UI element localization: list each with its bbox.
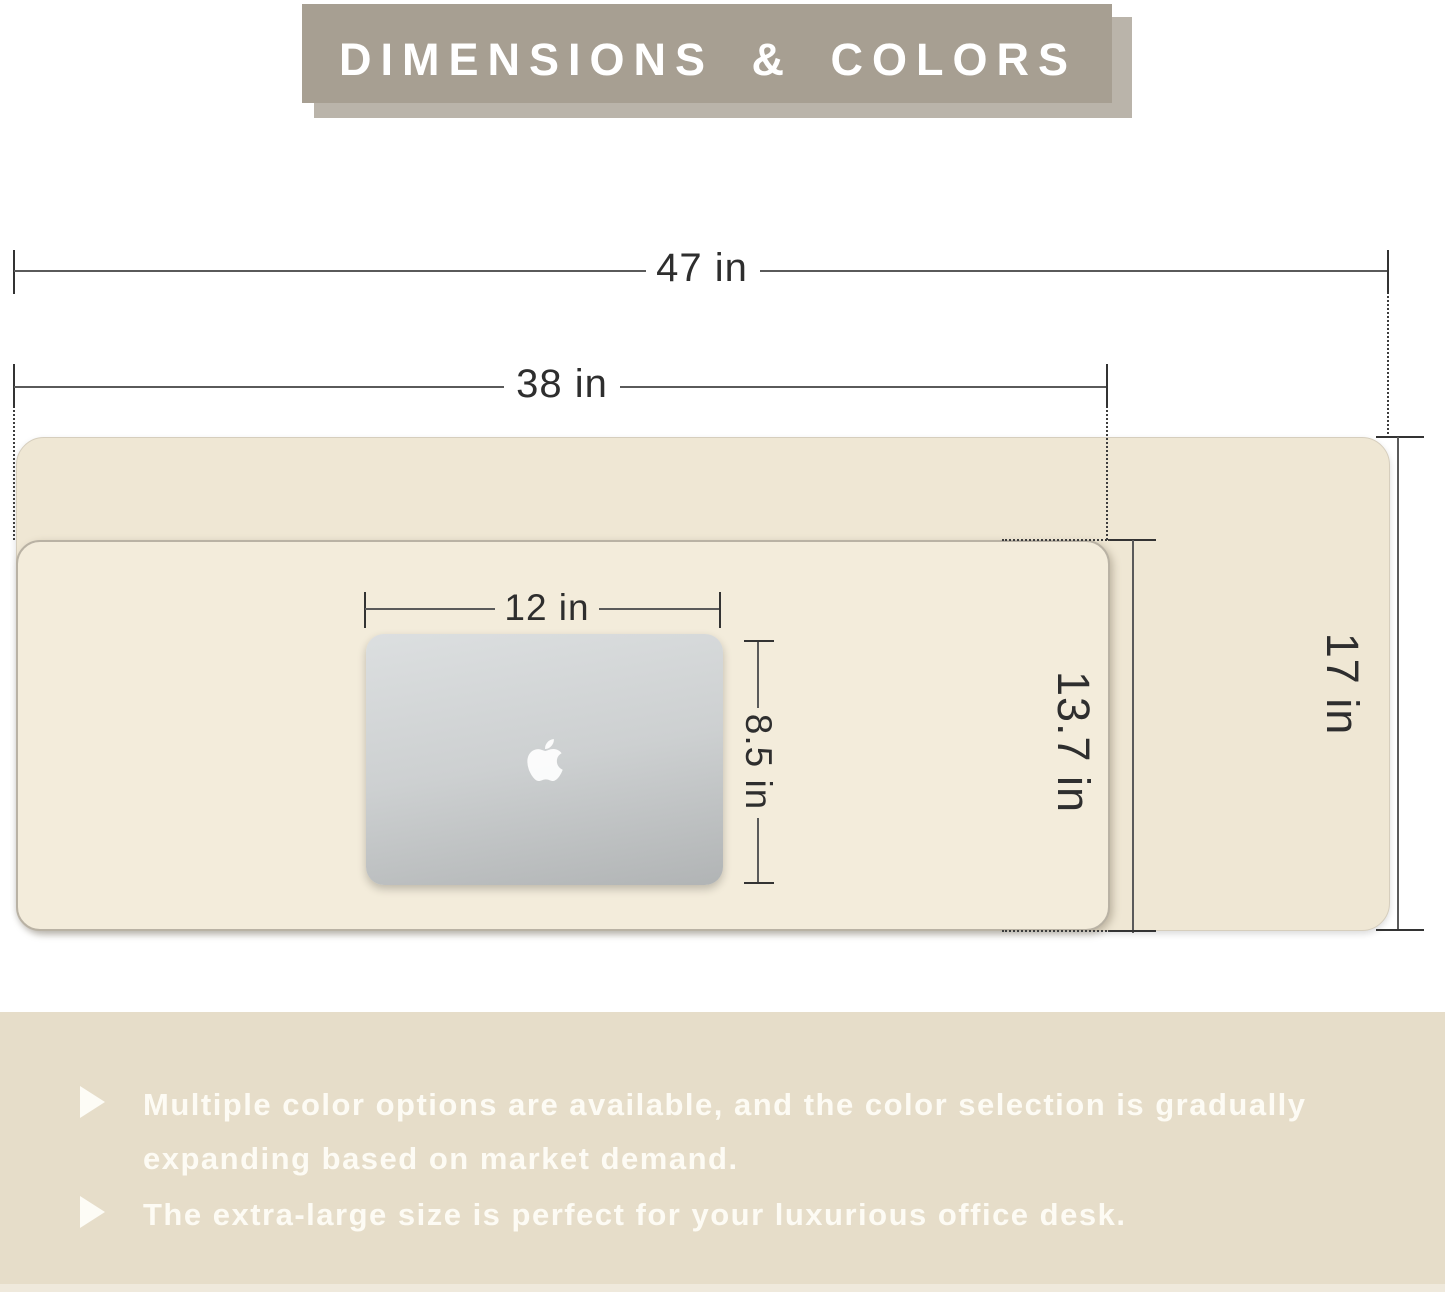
dim-38-tick-right [1106, 364, 1108, 408]
dim-12-tick-left [364, 592, 366, 628]
features-bottom-strip [0, 1284, 1445, 1292]
dim-38-line-left [14, 386, 504, 388]
dim-17-tick-top [1376, 436, 1424, 438]
dim-85-tick-bottom [744, 882, 774, 884]
dim-38-line-right [620, 386, 1108, 388]
feature-text-size: The extra-large size is perfect for your… [143, 1188, 1413, 1242]
dim-12-tick-right [719, 592, 721, 628]
dim-38-extension-left [13, 410, 15, 540]
dim-38-extension-right [1106, 410, 1108, 540]
feature-item: Multiple color options are available, an… [80, 1078, 1413, 1186]
dim-85-tick-top [744, 640, 774, 642]
page-title: DIMENSIONS & COLORS [302, 4, 1114, 116]
dim-17-label: 17 in [1316, 633, 1368, 736]
bullet-triangle-icon [80, 1196, 105, 1228]
dim-47-label: 47 in [640, 246, 764, 290]
dim-47-line-left [14, 270, 646, 272]
dim-85-label: 8.5 in [737, 714, 779, 811]
dim-47-tick-left [13, 250, 15, 294]
bullet-triangle-icon [80, 1086, 105, 1118]
features-section: Multiple color options are available, an… [0, 1012, 1445, 1284]
dim-137-label: 13.7 in [1047, 671, 1099, 813]
dim-38-label: 38 in [500, 362, 624, 406]
dim-17-tick-bottom [1376, 929, 1424, 931]
dim-137-tick-bottom [1110, 930, 1156, 932]
apple-logo-icon [525, 736, 565, 784]
dim-85-line-top [757, 642, 759, 708]
dim-12-label: 12 in [495, 588, 599, 628]
dim-17-line [1397, 437, 1399, 931]
dim-12-line-left [365, 608, 495, 610]
dim-47-line-right [760, 270, 1389, 272]
product-infographic: DIMENSIONS & COLORS 47 in 38 in 13.7 in … [0, 0, 1445, 1292]
dim-12-line-right [599, 608, 720, 610]
dim-47-extension-line [1387, 296, 1389, 438]
feature-text-colors: Multiple color options are available, an… [143, 1078, 1413, 1186]
laptop [366, 634, 723, 885]
dim-47-tick-right [1387, 250, 1389, 294]
feature-item: The extra-large size is perfect for your… [80, 1188, 1413, 1242]
dim-137-extension-bottom [1002, 930, 1110, 932]
dim-137-line [1132, 540, 1134, 933]
dim-85-line-bottom [757, 818, 759, 884]
dim-137-extension-top [1002, 539, 1110, 541]
